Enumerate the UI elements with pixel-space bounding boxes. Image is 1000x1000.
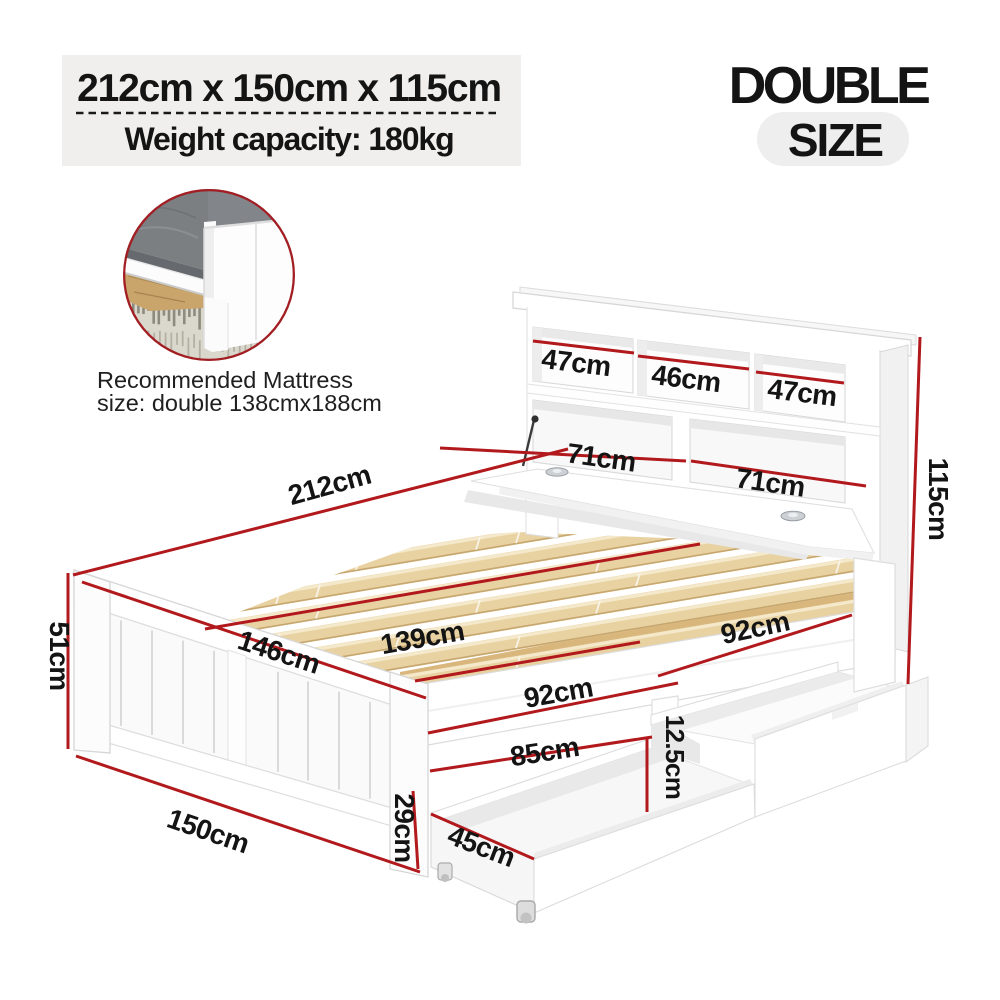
svg-text:Weight capacity: 180kg: Weight capacity: 180kg [124,121,453,157]
svg-text:DOUBLE: DOUBLE [729,57,929,115]
svg-text:size: double 138cmx188cm: size: double 138cmx188cm [97,390,382,416]
svg-text:29cm: 29cm [389,793,420,862]
svg-text:115cm: 115cm [923,458,954,541]
svg-text:212cm x 150cm x 115cm: 212cm x 150cm x 115cm [77,67,501,110]
svg-text:12.5cm: 12.5cm [660,715,690,800]
svg-text:SIZE: SIZE [788,114,883,166]
svg-text:51cm: 51cm [44,621,75,690]
